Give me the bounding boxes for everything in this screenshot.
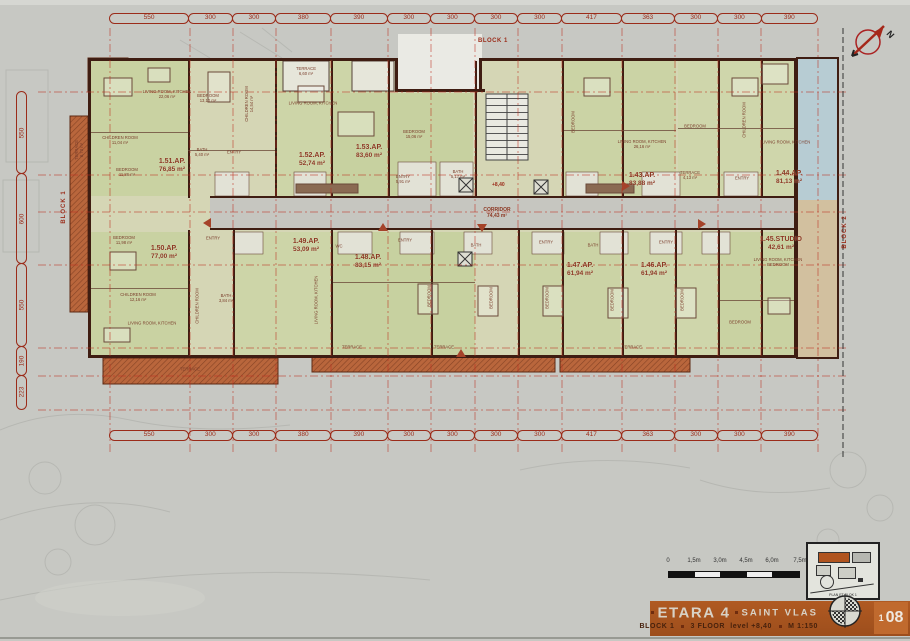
dimension-segment: 300 <box>717 13 762 24</box>
apartment-label: 1.52.AP.52,74 m² <box>299 152 325 168</box>
title-block-name: BLOCK 1 <box>640 623 675 630</box>
dimension-segment: 550 <box>16 91 27 174</box>
scale-tick-label: 4,5m <box>739 558 752 564</box>
dimension-segment: 300 <box>674 430 719 441</box>
project-location: SAINT VLAS <box>742 607 818 618</box>
scale-tick-label: 6,0m <box>765 558 778 564</box>
separator-dot-icon <box>651 611 654 614</box>
dimension-segment: 300 <box>387 13 432 24</box>
sheet-bottom-rule <box>0 637 910 639</box>
room-label: BEDROOM <box>570 111 575 133</box>
dimension-segment: 550 <box>109 13 189 24</box>
room-label: BEDROOM 11,98 m² <box>113 235 135 245</box>
scale-tick-label: 0 <box>666 558 669 564</box>
room-label: TERRACE 4,13 m² <box>680 170 700 180</box>
dimension-segment: 300 <box>717 430 762 441</box>
room-label: CHILDREN ROOM <box>741 102 746 138</box>
dimension-segment: 417 <box>561 430 622 441</box>
room-label: LIVING ROOM, KITCHEN <box>128 320 177 325</box>
dimension-segment: 600 <box>16 173 27 264</box>
dimension-segment: 380 <box>275 13 331 24</box>
room-label: BATH 5,17 m² <box>451 169 465 179</box>
sheet-number: 08 <box>886 609 904 627</box>
room-label: LIVING ROOM, KITCHEN 22,06 m² <box>143 89 192 99</box>
room-label: ENTRY <box>398 237 412 242</box>
room-label: LIVING ROOM, KITCHEN 26,16 m² <box>618 139 667 149</box>
key-plan-marker <box>858 578 863 582</box>
room-label: CHILDREN ROOM 12,16 m² <box>120 292 156 302</box>
dimension-segment: 300 <box>387 430 432 441</box>
sheet-top-edge <box>0 0 910 5</box>
apartment-label: 1.43.AP.83,88 m² <box>629 172 655 188</box>
title-level: level +8,40 <box>730 623 772 630</box>
room-label: BATH <box>588 242 599 247</box>
dimension-segment: 300 <box>674 13 719 24</box>
dimension-segment: 550 <box>109 430 189 441</box>
compass-icon: N <box>852 26 896 56</box>
room-label: ENTRY 5,91 m² <box>396 174 410 184</box>
room-label: LIVING ROOM, KITCHEN <box>762 139 811 144</box>
title-floor: 3 FLOOR <box>691 623 726 630</box>
dimension-segment: 300 <box>474 13 519 24</box>
corridor-label: CORRIDOR 74,43 m² <box>483 207 510 219</box>
apartment-label: 1.53.AP.83,60 m² <box>356 144 382 160</box>
dimension-segment: 390 <box>330 430 387 441</box>
dimension-segment: 300 <box>232 430 277 441</box>
sheet-number-prefix: 1 <box>879 613 884 623</box>
key-plan-highlighted-block <box>818 552 850 563</box>
room-label: ENTRY <box>735 175 749 180</box>
room-label: ENTRY <box>206 235 220 240</box>
room-label: ENTRY <box>539 239 553 244</box>
room-label: LIVING ROOM, KITCHEN <box>313 276 318 325</box>
scale-segment <box>694 571 722 578</box>
room-label: BEDROOM <box>679 289 684 311</box>
scale-segment <box>746 571 774 578</box>
dimension-chain-top: 550 300 300 380 390 300 300 300 300 417 … <box>110 13 818 23</box>
dimension-segment: 363 <box>621 13 675 24</box>
scale-segment <box>720 571 748 578</box>
room-label: LIVING ROOM, KITCHEN <box>289 100 338 105</box>
dimension-segment: 300 <box>517 13 562 24</box>
apartment-label: 1.44.AP.81,13 m² <box>776 170 802 186</box>
room-label: TERRACE 8,73 m² <box>74 140 84 160</box>
room-label: ENTRY <box>227 149 241 154</box>
dimension-segment: 300 <box>232 13 277 24</box>
dimension-segment: 380 <box>275 430 331 441</box>
scale-tick-label: 1,5m <box>687 558 700 564</box>
room-label: BATH 3,84 m² <box>219 293 233 303</box>
room-label: TERRACE <box>434 344 454 349</box>
dimension-segment: 300 <box>474 430 519 441</box>
title-block: ETARA 4SAINT VLAS BLOCK 1 3 FLOOR level … <box>650 601 910 636</box>
dimension-segment: 550 <box>16 263 27 346</box>
dimension-segment: 300 <box>430 13 475 24</box>
sheet-number-box: 1 08 <box>874 602 908 634</box>
apartment-label: 1.47.AP.61,94 m² <box>567 262 593 278</box>
room-label: BEDROOM <box>609 289 614 311</box>
room-label: BEDROOM 13,10 m² <box>197 93 219 103</box>
staircase <box>486 94 528 160</box>
room-label: ENTRY <box>659 239 673 244</box>
apartment-label: 1.46.AP.61,94 m² <box>641 262 667 278</box>
room-label: BATH 5,40 m² <box>195 147 209 157</box>
apartment-label: 1.50.AP.77,00 m² <box>151 245 177 261</box>
dimension-chain-left: 550 600 550 190 223 <box>16 92 27 410</box>
dimension-segment: 390 <box>761 430 818 441</box>
dimension-segment: 190 <box>16 346 27 376</box>
dimension-segment: 390 <box>330 13 387 24</box>
dimension-segment: 300 <box>430 430 475 441</box>
dimension-segment: 363 <box>621 430 675 441</box>
room-label: TERRACE <box>180 366 200 371</box>
scale-segment <box>668 571 696 578</box>
level-marker: +8,40 <box>492 182 505 188</box>
key-plan-block <box>852 552 871 563</box>
room-label: BEDROOM 11,86 m² <box>116 167 138 177</box>
room-label: TERRACE <box>342 344 362 349</box>
apartment-label: 1.49.AP.53,09 m² <box>293 238 319 254</box>
apartment-label: 1.51.AP.76,85 m² <box>159 158 185 174</box>
separator-dot-icon <box>779 625 782 628</box>
scale-bar: 0 1,5m 3,0m 4,5m 6,0m 7,5m <box>664 558 814 584</box>
room-label: TERRACE 6,60 m² <box>296 66 316 76</box>
key-plan-roundabout <box>820 575 834 589</box>
room-label: BEDROOM <box>684 123 706 128</box>
dimension-segment: 300 <box>517 430 562 441</box>
room-label: WC <box>336 243 343 248</box>
dimension-chain-bottom: 550 300 300 380 390 300 300 300 300 417 … <box>110 430 818 440</box>
separator-dot-icon <box>735 611 738 614</box>
apartment-label: 1.48.AP.83,15 m² <box>355 254 381 270</box>
scale-tick-label: 7,5m <box>793 558 806 564</box>
title-scale: M 1:150 <box>788 623 818 630</box>
room-label: BEDROOM <box>544 287 549 309</box>
apartment-label: 1.45.STUDIO42,61 m² <box>760 236 802 252</box>
drawing-sheet: N 550 300 300 380 390 300 300 300 300 41… <box>0 0 910 641</box>
room-label: BEDROOM 15,06 m² <box>403 129 425 139</box>
scale-tick-label: 3,0m <box>713 558 726 564</box>
key-plan-block <box>838 567 856 579</box>
separator-dot-icon <box>681 625 684 628</box>
dimension-segment: 300 <box>188 430 233 441</box>
project-title: ETARA 4 <box>658 604 731 621</box>
block1-top-label: BLOCK 1 <box>478 38 508 44</box>
scale-segment <box>772 571 800 578</box>
dimension-segment: 390 <box>761 13 818 24</box>
block1-side-label: BLOCK 1 <box>61 190 67 223</box>
title-line-1: ETARA 4SAINT VLAS <box>647 604 819 622</box>
title-line-2: BLOCK 1 3 FLOOR level +8,40 M 1:150 <box>640 623 818 630</box>
surveyor-logo-icon <box>826 592 864 630</box>
room-label: TERRACE <box>622 344 642 349</box>
room-label: CHILDREN ROOM 14,54 m² <box>244 86 254 122</box>
room-label: BEDROOM <box>729 319 751 324</box>
dimension-segment: 300 <box>188 13 233 24</box>
block2-side-label: BLOCK 2 <box>842 215 848 248</box>
compass-north-label: N <box>885 29 897 41</box>
room-label: CHILDREN ROOM 11,04 m² <box>102 135 138 145</box>
room-label: BEDROOM <box>488 287 493 309</box>
room-label: BATH <box>471 242 482 247</box>
room-label: CHILDREN ROOM <box>194 288 199 324</box>
room-label: LIVING ROOM, KITCHEN BEDROOM <box>754 257 803 267</box>
room-label: BEDROOM <box>426 285 431 307</box>
dimension-segment: 417 <box>561 13 622 24</box>
dimension-segment: 223 <box>16 375 27 410</box>
